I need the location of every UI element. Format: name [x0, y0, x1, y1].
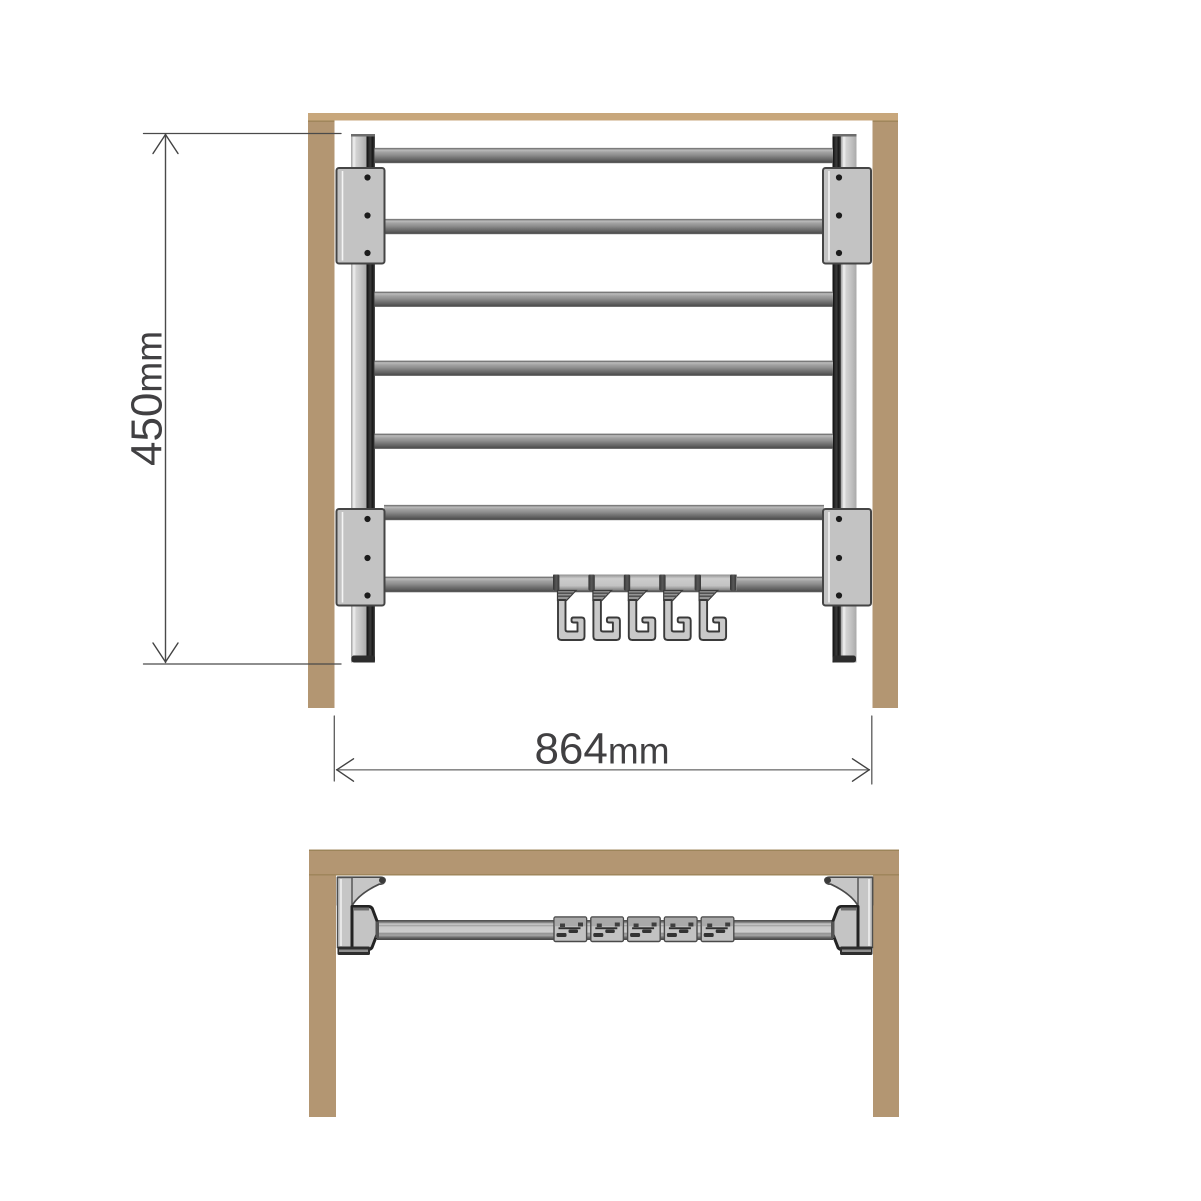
svg-text:864mm: 864mm [534, 725, 669, 774]
svg-text:450mm: 450mm [123, 331, 172, 466]
